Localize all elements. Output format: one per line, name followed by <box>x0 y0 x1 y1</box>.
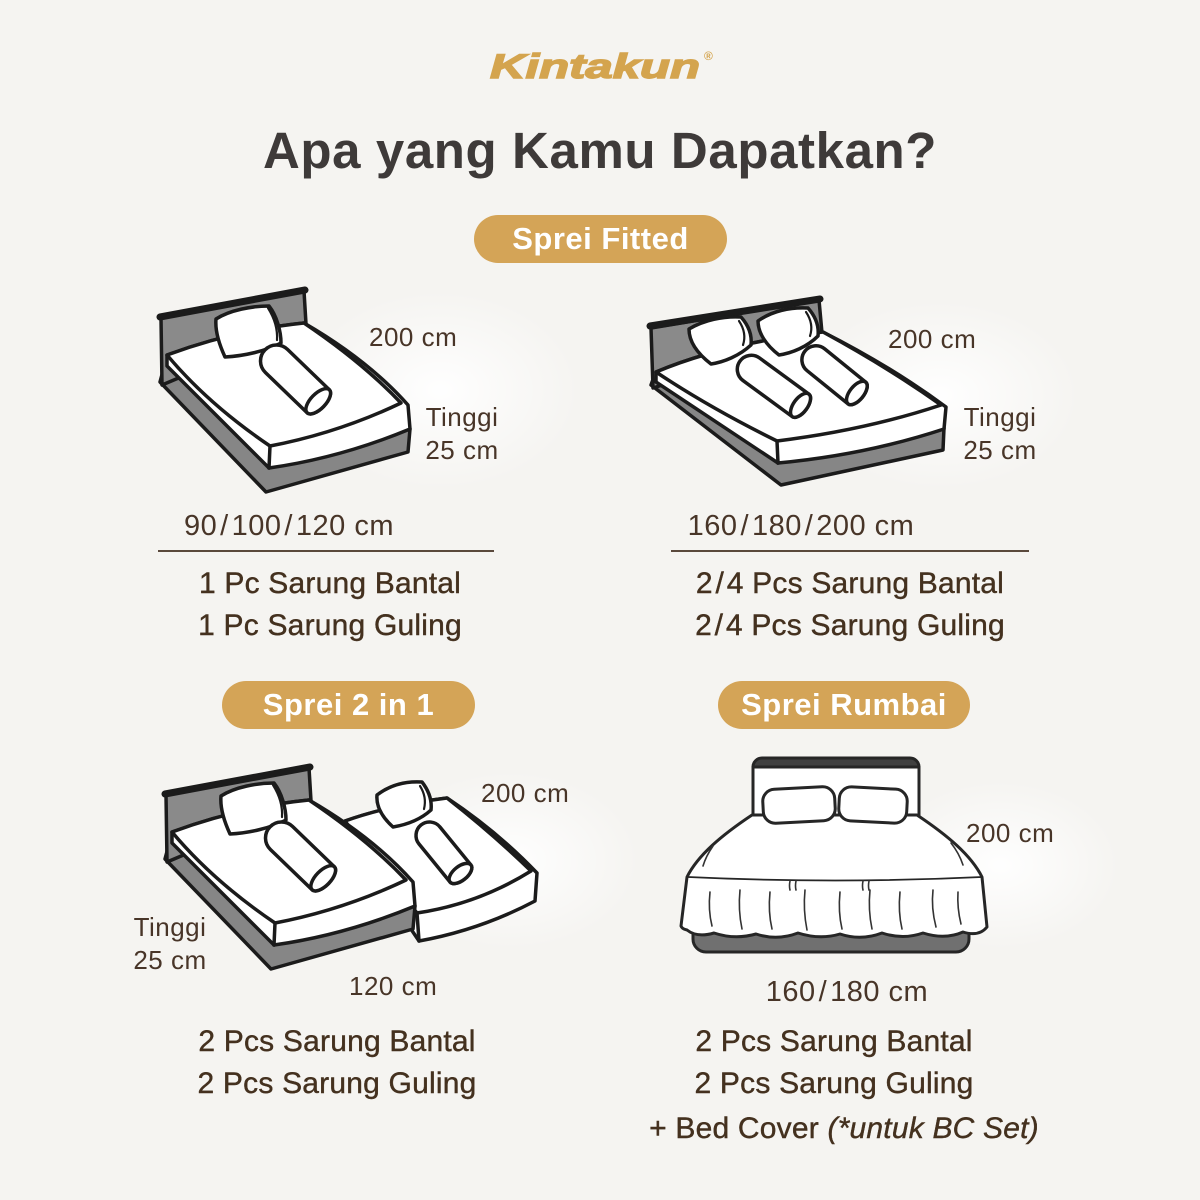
svg-text:Kintakun: Kintakun <box>490 48 700 86</box>
svg-text:®: ® <box>704 49 713 63</box>
